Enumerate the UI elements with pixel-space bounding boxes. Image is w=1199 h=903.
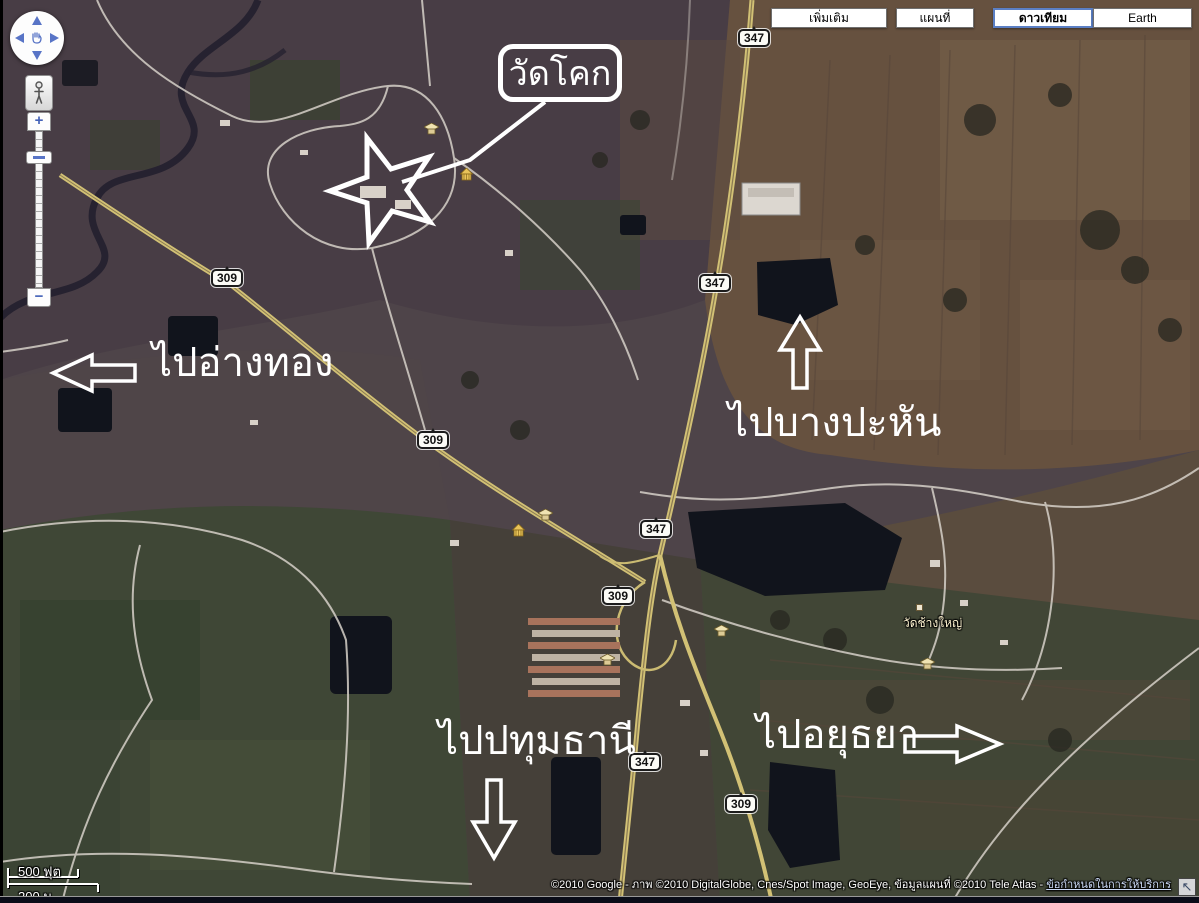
pan-center-hand-button[interactable] [29,30,45,51]
callout-wat-khok: วัดโคก [498,44,622,102]
hand-icon [29,30,45,46]
direction-label-ayutthaya: ไปอยุธยา [756,710,919,760]
chevron-left-icon [15,33,24,43]
pan-left-button[interactable] [14,32,26,44]
pegman-icon [33,81,45,105]
school-icon[interactable] [424,122,439,140]
pan-up-button[interactable] [31,15,43,27]
place-marker[interactable] [916,604,923,611]
direction-label-bangpahan: ไปบางปะหัน [728,398,941,448]
pegman-button[interactable] [25,75,53,111]
window-bottom-bar [0,896,1199,903]
school-icon[interactable] [600,653,615,671]
map-type-button-satellite-active[interactable]: ดาวเทียม [993,8,1093,28]
school-icon[interactable] [920,657,935,675]
route-shield-309: 309 [211,269,243,287]
zoom-out-button[interactable]: − [27,288,51,307]
arrow-up-left-icon: ↖ [1182,879,1193,894]
route-shield-309: 309 [725,795,757,813]
collapse-control-button[interactable]: ↖ [1178,878,1196,896]
chevron-up-icon [32,16,42,25]
satellite-imagery[interactable] [0,0,1199,903]
route-shield-347: 347 [699,274,731,292]
terms-of-service-link[interactable]: ข้อกำหนดในการให้บริการ [1046,879,1171,891]
school-icon[interactable] [538,508,553,526]
zoom-slider-handle[interactable] [26,151,52,164]
place-label-wat-chang-yai: วัดช้างใหญ่ [903,614,962,633]
zoom-in-button[interactable]: + [27,112,51,131]
route-shield-309: 309 [602,587,634,605]
temple-icon[interactable] [460,168,473,186]
route-shield-347: 347 [640,520,672,538]
map-type-bar: เพิ่มเติม แผนที่ ดาวเทียม Earth [771,8,1192,28]
window-left-edge [0,0,3,903]
pan-right-button[interactable] [48,32,60,44]
map-type-button-earth[interactable]: Earth [1093,8,1192,28]
map-type-button-more[interactable]: เพิ่มเติม [771,8,887,28]
direction-label-pathumthani: ไปปทุมธานี [438,716,636,766]
direction-label-angthong: ไปอ่างทอง [152,338,333,388]
pan-control [10,11,64,65]
attribution: ©2010 Google - ภาพ ©2010 DigitalGlobe, C… [551,875,1171,893]
chevron-down-icon [32,51,42,60]
google-maps-satellite-view: วัดโคก ไปอ่างทอง ไปบางปะหัน ไปปทุมธานี ไ… [0,0,1199,903]
map-type-button-map[interactable]: แผนที่ [896,8,974,28]
attribution-text: ©2010 Google - ภาพ ©2010 DigitalGlobe, C… [551,879,1046,891]
callout-text: วัดโคก [509,46,612,100]
temple-icon[interactable] [512,524,525,542]
route-shield-347: 347 [738,29,770,47]
chevron-right-icon [50,33,59,43]
scale-feet-label: 500 ฟุต [18,861,61,882]
school-icon[interactable] [714,624,729,642]
route-shield-309: 309 [417,431,449,449]
